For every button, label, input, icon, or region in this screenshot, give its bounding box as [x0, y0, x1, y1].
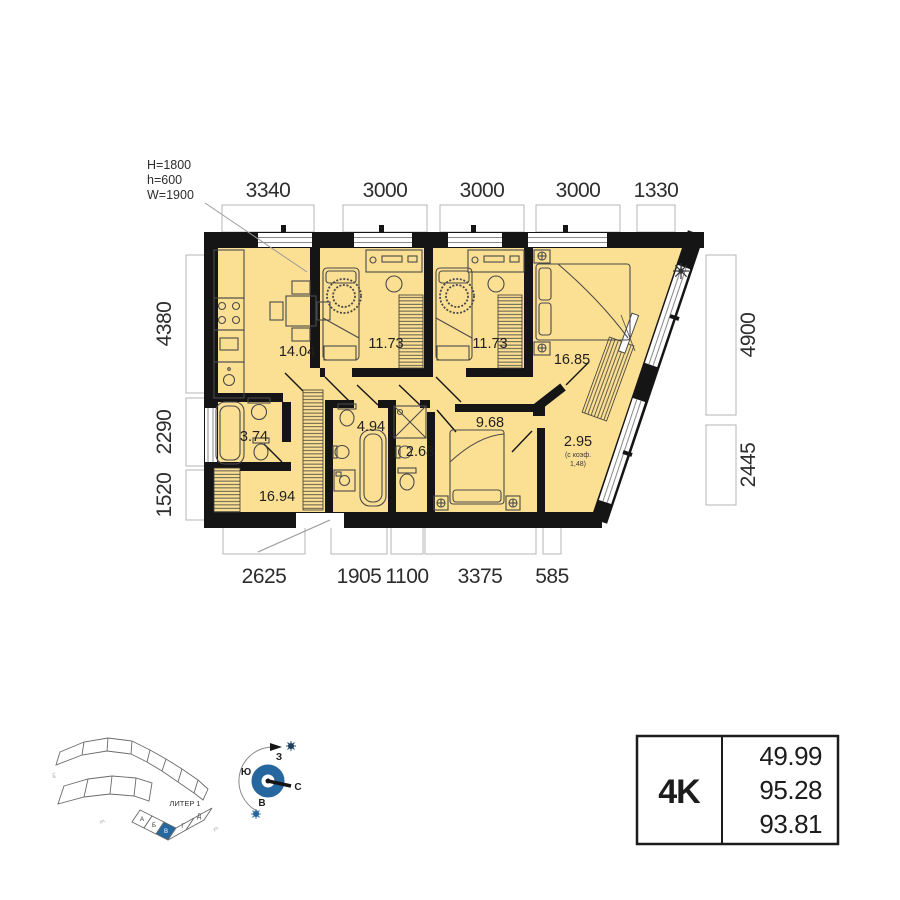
- reduced-area-value: 93.81: [759, 809, 822, 839]
- street-label-3: ул.: [212, 825, 220, 832]
- loggia-note-1: (с коэф.: [565, 452, 591, 459]
- dim-bottom-1: 2625: [242, 565, 287, 588]
- dim-right-1: 4900: [737, 313, 760, 358]
- compass: З Ю С В: [239, 741, 302, 819]
- compass-south: Ю: [241, 767, 251, 778]
- loggia-note-2: 1,48): [570, 461, 586, 468]
- compass-needle: [268, 781, 291, 786]
- section-a-label: А: [140, 817, 144, 823]
- floorplan-drawing: 14.04 11.73 11.73 16.85 3.74 16.94 4.94 …: [0, 0, 900, 900]
- dim-right-2: 2445: [737, 443, 760, 488]
- area-shower: 2.68: [406, 444, 434, 460]
- compass-west: З: [276, 752, 282, 763]
- area-bath: 3.74: [240, 429, 268, 445]
- entrance-opening: [296, 513, 344, 528]
- section-b-label: Б: [152, 823, 156, 829]
- area-living: 9.68: [476, 415, 504, 431]
- dim-left-1: 4380: [153, 302, 176, 347]
- window-note-w: W=1900: [147, 188, 194, 202]
- area-loggia: 2.95: [564, 434, 592, 450]
- dim-top-5: 1330: [634, 179, 679, 202]
- section-d-label: Д: [197, 814, 201, 820]
- window-note-h: H=1800: [147, 158, 191, 172]
- sunrise-icon: [251, 809, 261, 819]
- siteplan-minimap: ЛИТЕР 1 А Б В Г Д ул. ул. ул.: [51, 738, 220, 840]
- window-note-sill: h=600: [147, 173, 182, 187]
- street-label-2: ул.: [99, 818, 106, 824]
- snowflake-icon: [673, 263, 689, 279]
- dim-top-1: 3340: [246, 179, 291, 202]
- dim-bottom-2: 1905: [337, 565, 382, 588]
- compass-east: В: [258, 798, 265, 809]
- dim-left-2: 2290: [153, 410, 176, 455]
- apartment-type: 4K: [658, 773, 701, 811]
- living-area-value: 49.99: [759, 741, 822, 771]
- dim-top-2: 3000: [363, 179, 408, 202]
- dim-bottom-4: 3375: [458, 565, 503, 588]
- total-area-value: 95.28: [759, 775, 822, 805]
- compass-north: С: [294, 782, 301, 793]
- area-room2: 11.73: [472, 336, 507, 352]
- street-label-1: ул.: [51, 772, 56, 778]
- summary-table: 4K 49.99 95.28 93.81: [637, 736, 838, 844]
- section-v-label: В: [164, 829, 168, 835]
- dim-left-3: 1520: [153, 473, 176, 518]
- area-bedroom: 16.85: [554, 352, 590, 368]
- area-bath2: 4.94: [357, 419, 385, 435]
- left-window: [205, 408, 217, 462]
- liter-label: ЛИТЕР 1: [169, 799, 200, 808]
- floorplan-page: 14.04 11.73 11.73 16.85 3.74 16.94 4.94 …: [0, 0, 900, 900]
- dim-bottom-5: 585: [535, 565, 569, 588]
- dim-top-4: 3000: [556, 179, 601, 202]
- sunset-icon: [286, 741, 296, 751]
- area-room1: 11.73: [368, 336, 403, 352]
- area-hall: 16.94: [259, 489, 295, 505]
- dim-top-3: 3000: [460, 179, 505, 202]
- dim-bottom-3: 1100: [385, 565, 428, 588]
- area-kitchen: 14.04: [279, 344, 315, 360]
